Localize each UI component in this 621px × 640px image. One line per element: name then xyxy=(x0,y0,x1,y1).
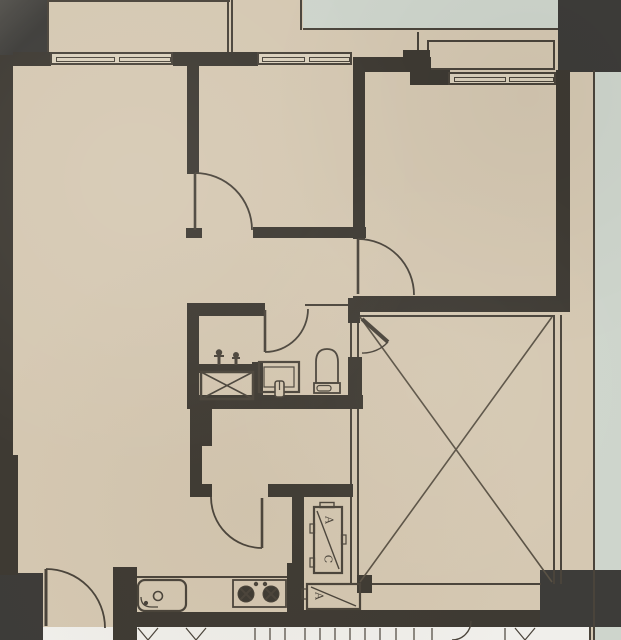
shower-taps xyxy=(214,350,240,365)
bathroom-door xyxy=(265,309,308,352)
kitchen-sink xyxy=(138,580,186,611)
kitchen-room-door xyxy=(211,497,262,548)
bedroom1-door xyxy=(195,173,252,230)
floor-plan: A C A xyxy=(0,0,621,640)
washing-machine xyxy=(201,372,253,399)
toilet xyxy=(314,349,340,393)
stair-treads xyxy=(138,628,535,640)
ac-box xyxy=(302,584,360,609)
corridor-door-arc xyxy=(452,621,471,640)
fixtures-layer: A C A xyxy=(0,0,621,640)
shaft-x-mark xyxy=(360,317,552,582)
ac-label-top: A xyxy=(323,515,336,525)
bedroom2-door xyxy=(358,239,414,295)
shaft-door xyxy=(362,319,388,353)
stove xyxy=(233,580,286,607)
entry-door xyxy=(46,569,105,628)
ac-box-label: A xyxy=(313,591,326,601)
ac-label-bottom: C xyxy=(322,555,335,563)
vanity-sink xyxy=(259,362,299,397)
